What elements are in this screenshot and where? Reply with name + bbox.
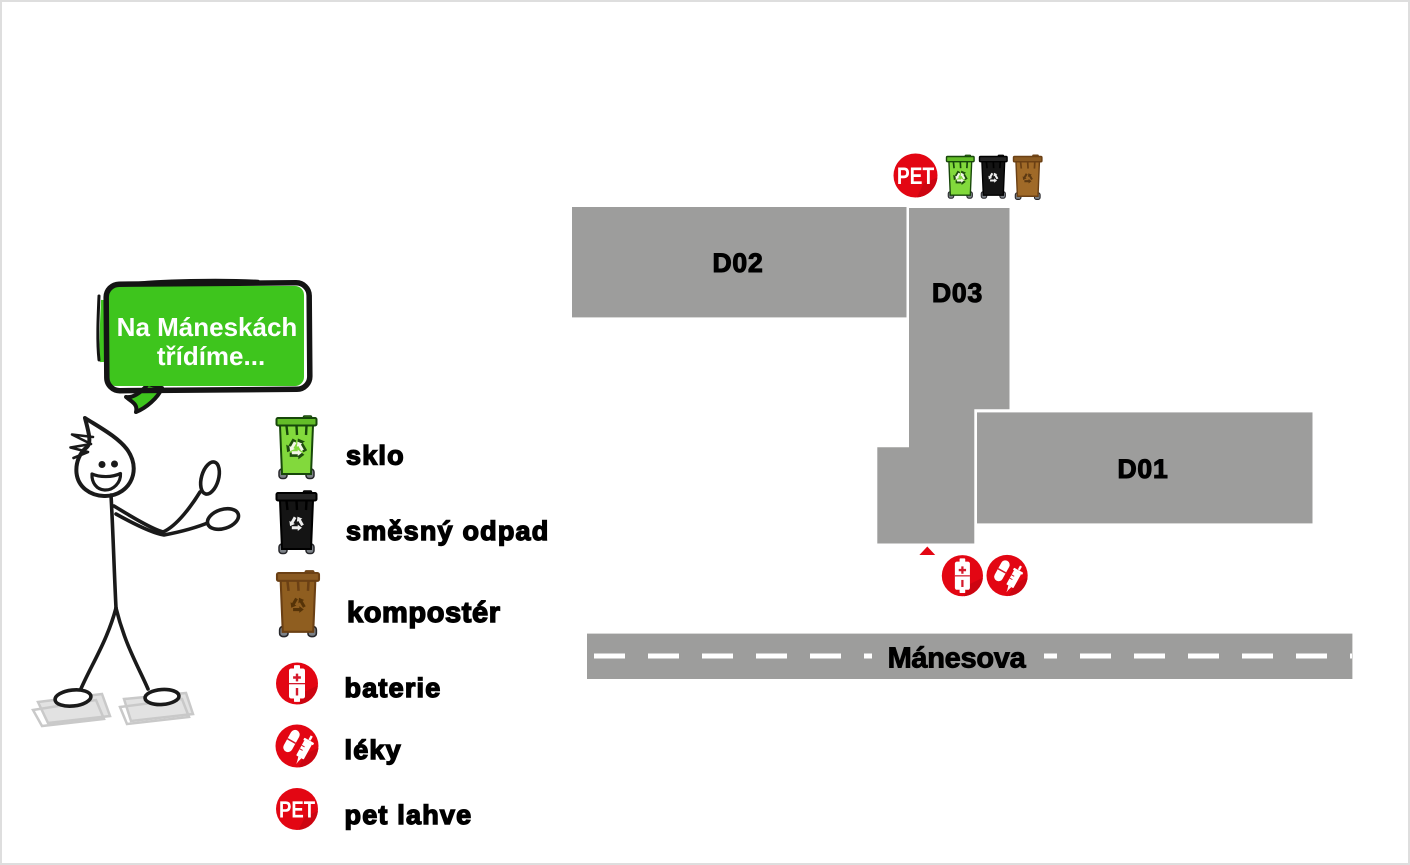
svg-text:D01: D01 [1117, 454, 1168, 484]
svg-text:baterie: baterie [345, 673, 442, 703]
svg-text:Mánesova: Mánesova [888, 643, 1027, 675]
svg-text:PET: PET [897, 163, 935, 190]
svg-text:léky: léky [345, 735, 402, 765]
svg-text:sklo: sklo [346, 441, 405, 471]
svg-text:kompostér: kompostér [347, 597, 501, 629]
svg-text:pet lahve: pet lahve [345, 800, 473, 830]
svg-text:směsný odpad: směsný odpad [346, 516, 549, 546]
svg-text:Na Máneskách: Na Máneskách [117, 312, 298, 342]
svg-text:D02: D02 [712, 248, 763, 278]
svg-text:PET: PET [279, 796, 316, 822]
svg-text:třídíme...: třídíme... [157, 341, 265, 371]
svg-text:D03: D03 [932, 278, 983, 308]
